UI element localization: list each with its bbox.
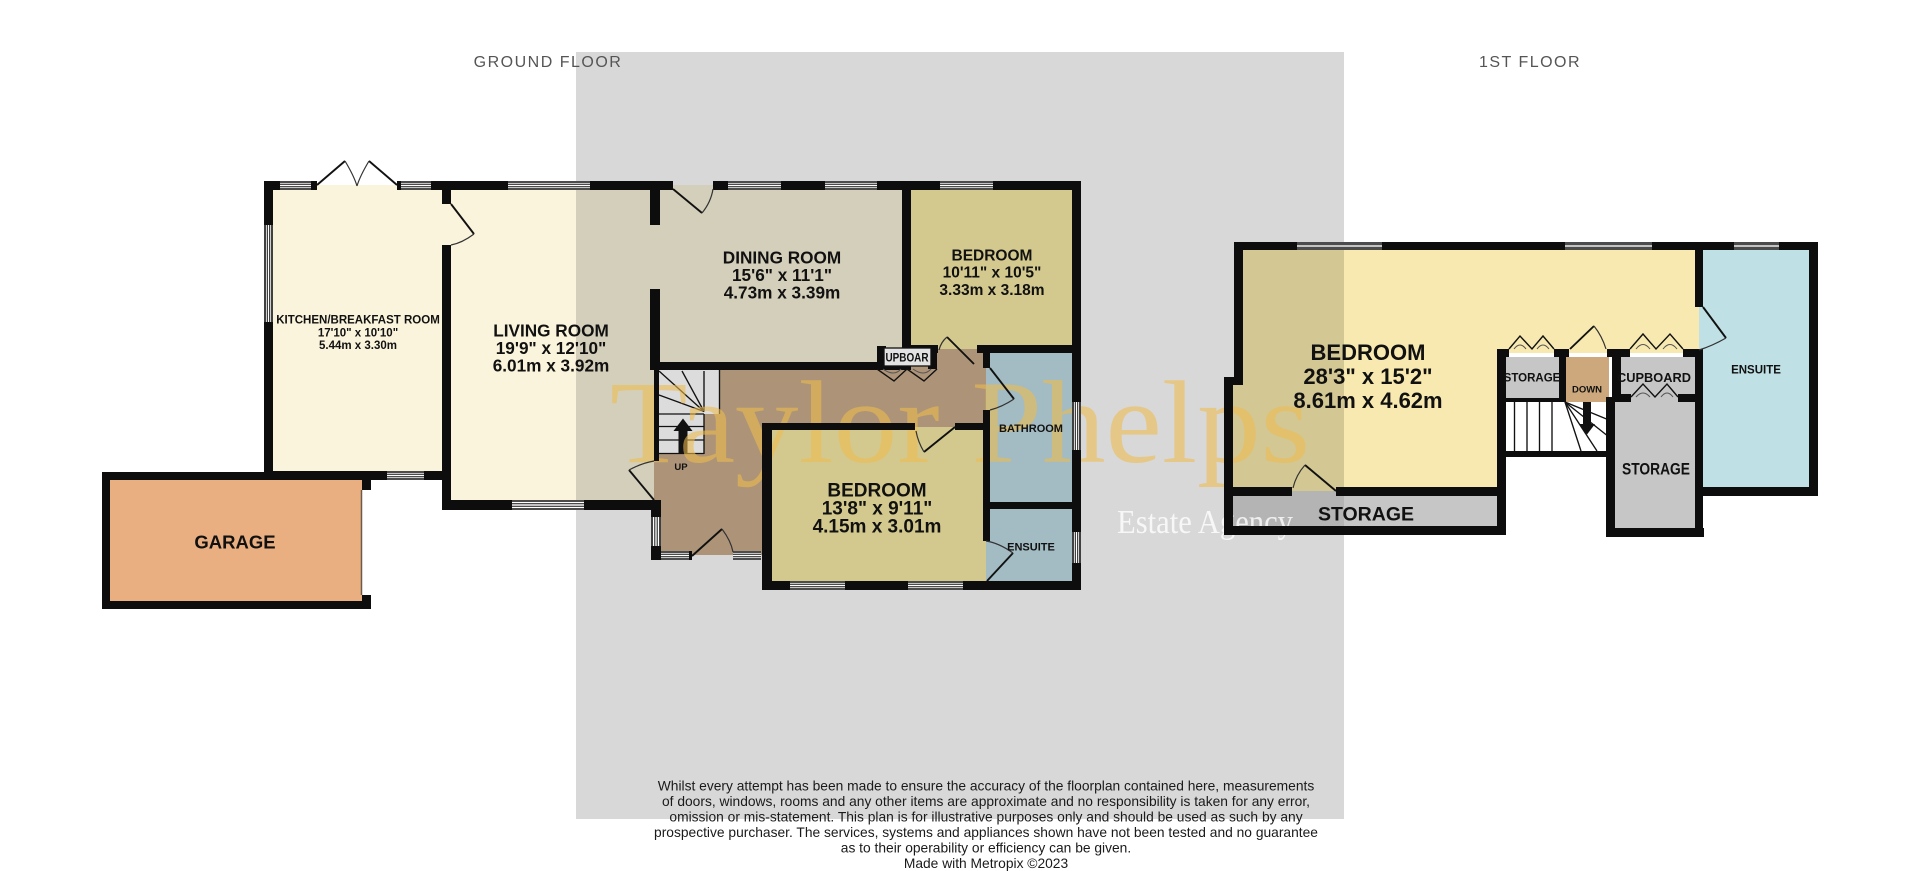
svg-text:6.01m x 3.92m: 6.01m x 3.92m (493, 356, 610, 376)
svg-text:prospective purchaser. The ser: prospective purchaser. The services, sys… (654, 825, 1318, 840)
svg-text:omission or mis-statement. Thi: omission or mis-statement. This plan is … (669, 809, 1302, 824)
svg-text:DOWN: DOWN (1572, 385, 1602, 396)
svg-text:Taylor Phelps: Taylor Phelps (610, 357, 1310, 488)
svg-text:8.61m x 4.62m: 8.61m x 4.62m (1293, 388, 1442, 413)
svg-text:STORAGE: STORAGE (1318, 504, 1414, 526)
svg-text:UPBOAR: UPBOAR (886, 353, 930, 365)
svg-text:BEDROOM: BEDROOM (1311, 340, 1426, 365)
svg-text:UP: UP (674, 462, 688, 473)
svg-text:28'3" x 15'2": 28'3" x 15'2" (1303, 364, 1432, 389)
svg-text:Made with Metropix ©2023: Made with Metropix ©2023 (904, 856, 1069, 871)
svg-text:as to their operability or eff: as to their operability or efficiency ca… (841, 840, 1131, 855)
svg-text:10'11" x 10'5": 10'11" x 10'5" (943, 265, 1042, 282)
svg-text:5.44m x 3.30m: 5.44m x 3.30m (319, 340, 397, 352)
svg-text:ENSUITE: ENSUITE (1007, 542, 1055, 554)
svg-text:GARAGE: GARAGE (194, 532, 275, 553)
svg-text:4.73m x 3.39m: 4.73m x 3.39m (724, 283, 841, 303)
svg-text:4.15m x 3.01m: 4.15m x 3.01m (813, 517, 942, 538)
svg-text:1ST FLOOR: 1ST FLOOR (1479, 54, 1581, 71)
svg-text:GROUND FLOOR: GROUND FLOOR (474, 54, 623, 71)
svg-text:of doors, windows, rooms and a: of doors, windows, rooms and any other i… (662, 794, 1310, 809)
svg-text:CUPBOARD: CUPBOARD (1617, 370, 1691, 385)
svg-text:Estate Agency: Estate Agency (1117, 504, 1293, 541)
svg-text:STORAGE: STORAGE (1504, 373, 1561, 385)
svg-text:3.33m x 3.18m: 3.33m x 3.18m (939, 282, 1044, 299)
svg-text:Whilst every attempt has been: Whilst every attempt has been made to en… (658, 778, 1315, 793)
svg-text:KITCHEN/BREAKFAST ROOM: KITCHEN/BREAKFAST ROOM (276, 315, 440, 327)
svg-text:STORAGE: STORAGE (1622, 461, 1690, 479)
svg-text:ENSUITE: ENSUITE (1731, 365, 1781, 377)
svg-text:BEDROOM: BEDROOM (952, 248, 1033, 265)
svg-text:17'10" x 10'10": 17'10" x 10'10" (318, 328, 398, 340)
svg-text:BATHROOM: BATHROOM (999, 423, 1063, 435)
